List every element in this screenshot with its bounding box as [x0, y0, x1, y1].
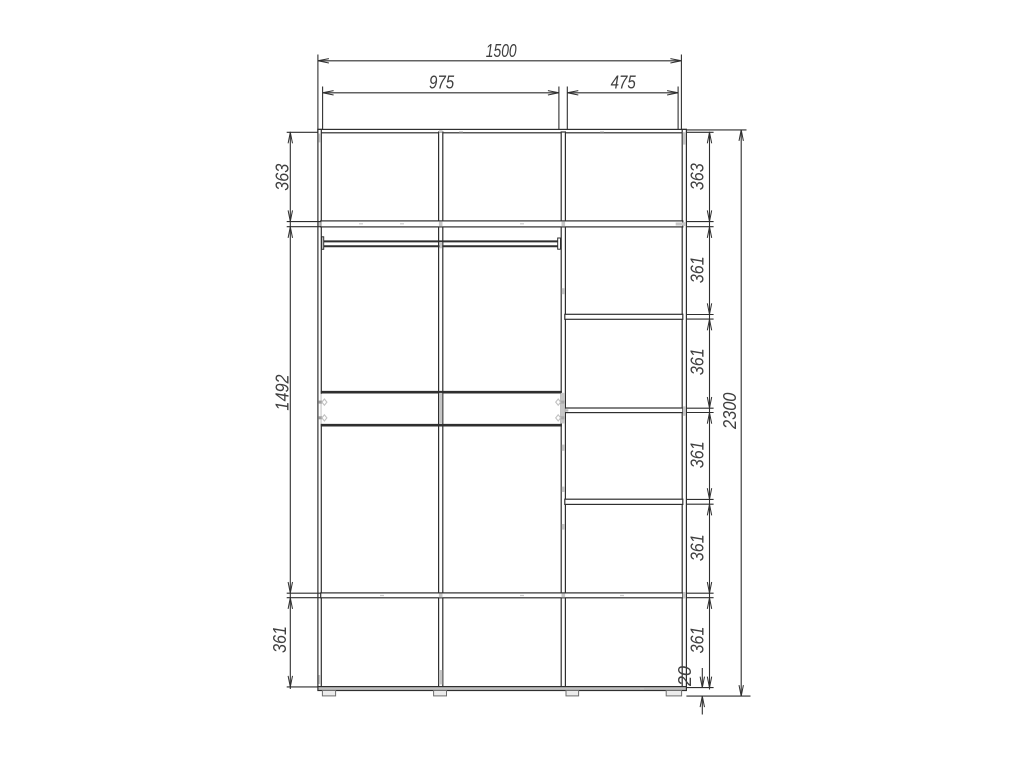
svg-text:20: 20: [674, 665, 695, 687]
svg-text:2300: 2300: [719, 392, 740, 430]
svg-text:363: 363: [687, 163, 708, 191]
svg-text:363: 363: [272, 163, 293, 191]
svg-text:361: 361: [687, 441, 708, 468]
svg-text:1500: 1500: [486, 40, 517, 61]
svg-text:361: 361: [687, 534, 708, 561]
svg-text:975: 975: [429, 71, 455, 92]
svg-text:361: 361: [687, 348, 708, 375]
svg-text:1492: 1492: [272, 374, 293, 411]
svg-text:361: 361: [687, 256, 708, 283]
svg-text:475: 475: [611, 71, 637, 92]
svg-text:361: 361: [687, 627, 708, 654]
svg-text:361: 361: [269, 626, 290, 653]
